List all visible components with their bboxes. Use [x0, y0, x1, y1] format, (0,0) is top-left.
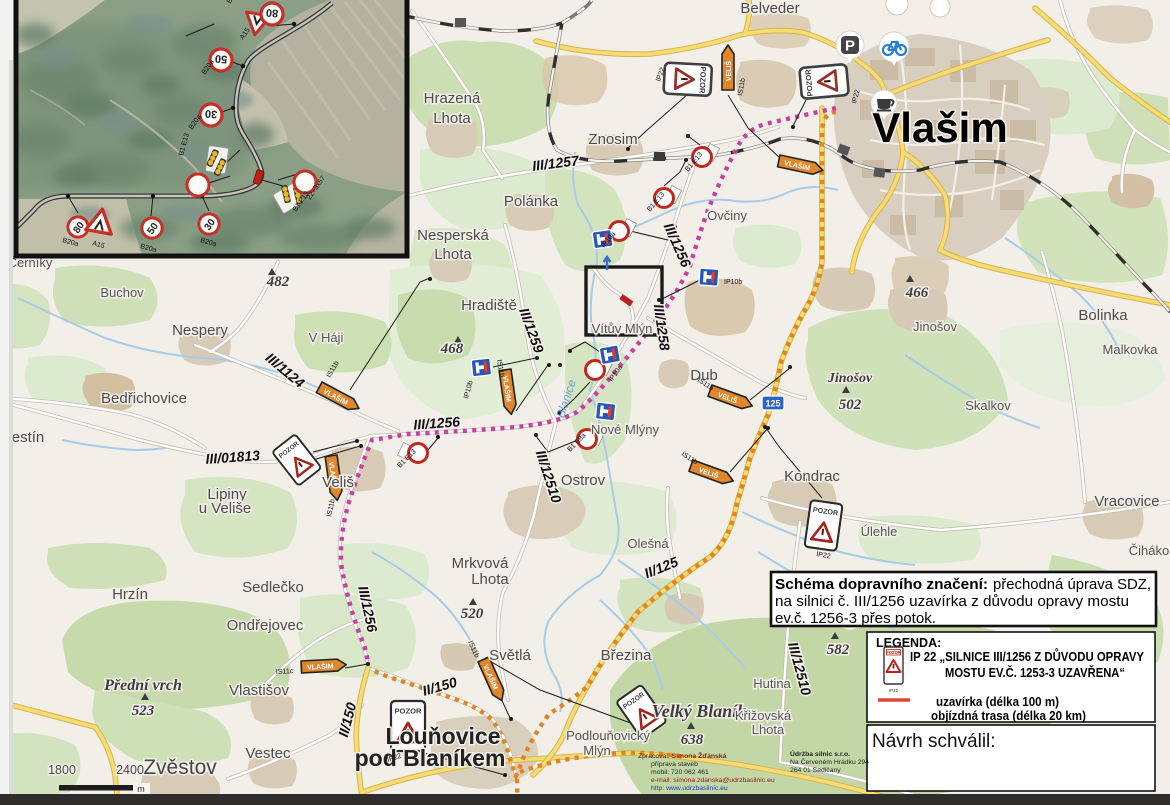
svg-text:Zpracoval: Simona Žďánská: Zpracoval: Simona Žďánská: [638, 751, 727, 760]
svg-text:Nesperská: Nesperská: [417, 227, 489, 244]
svg-text:80: 80: [266, 6, 279, 19]
svg-text:přechodná úprava SDZ,: přechodná úprava SDZ,: [993, 576, 1151, 593]
svg-text:Světlá: Světlá: [489, 647, 531, 664]
svg-text:Vlašim: Vlašim: [872, 104, 1007, 151]
svg-text:Hutina: Hutina: [753, 676, 791, 691]
svg-text:1800: 1800: [48, 763, 76, 777]
svg-text:Hrazená: Hrazená: [424, 90, 481, 107]
svg-text:ev.č. 1256-3 přes potok.: ev.č. 1256-3 přes potok.: [775, 610, 936, 627]
svg-text:Údržba silnic s.r.o.: Údržba silnic s.r.o.: [790, 749, 850, 758]
svg-text:482: 482: [266, 274, 290, 290]
svg-text:IS11c: IS11c: [276, 668, 294, 676]
svg-text:Ostrov: Ostrov: [561, 472, 606, 489]
svg-text:Velký Blaník: Velký Blaník: [652, 701, 747, 721]
svg-text:POZOR: POZOR: [886, 650, 901, 655]
svg-text:264 01 Sedlčany: 264 01 Sedlčany: [790, 767, 841, 774]
svg-text:466: 466: [905, 285, 929, 301]
svg-text:P: P: [845, 38, 855, 55]
svg-text:Polánka: Polánka: [504, 193, 559, 210]
svg-text:Vlastišov: Vlastišov: [229, 682, 290, 699]
svg-text:50: 50: [215, 52, 228, 65]
svg-text:Lhota: Lhota: [752, 722, 785, 737]
svg-text:Bedřichovice: Bedřichovice: [101, 390, 187, 407]
svg-text:IP10b: IP10b: [724, 279, 742, 286]
svg-text:Na Červeném Hrádku 294: Na Červeném Hrádku 294: [790, 757, 869, 766]
svg-text:http: www.udrzbasilnic.eu: http: www.udrzbasilnic.eu: [651, 785, 728, 792]
svg-text:Podlouňovický: Podlouňovický: [566, 728, 650, 743]
svg-text:523: 523: [132, 703, 155, 719]
svg-text:Vítův Mlýn: Vítův Mlýn: [592, 321, 653, 336]
svg-text:Hradiště: Hradiště: [461, 297, 517, 314]
svg-text:mobil: 720 062 461: mobil: 720 062 461: [651, 769, 709, 776]
svg-text:pod Blaníkem: pod Blaníkem: [355, 745, 506, 771]
svg-text:V Háji: V Háji: [309, 330, 344, 345]
svg-text:Schéma dopravního značení:: Schéma dopravního značení:: [775, 576, 988, 593]
svg-text:468: 468: [440, 341, 464, 357]
svg-text:m: m: [137, 784, 145, 794]
svg-text:30: 30: [205, 107, 218, 120]
svg-text:Březina: Březina: [601, 647, 653, 664]
svg-text:Lhota: Lhota: [433, 110, 471, 127]
svg-text:Nové Mlýny: Nové Mlýny: [591, 422, 659, 437]
svg-text:MOSTU EV.Č. 1253-3 UZAVŘENA“: MOSTU EV.Č. 1253-3 UZAVŘENA“: [945, 665, 1125, 680]
svg-text:Vestec: Vestec: [245, 745, 291, 762]
svg-text:Buchov: Buchov: [100, 285, 144, 300]
svg-text:u Veliše: u Veliše: [199, 500, 252, 517]
svg-text:Ovčiny: Ovčiny: [707, 208, 747, 223]
svg-text:III/1256: III/1256: [413, 413, 461, 432]
svg-text:Zvěstov: Zvěstov: [143, 756, 217, 779]
svg-text:Bolinka: Bolinka: [1078, 307, 1128, 324]
svg-text:Lhota: Lhota: [471, 571, 509, 588]
svg-text:Návrh schválil:: Návrh schválil:: [872, 731, 996, 752]
svg-text:objízdná trasa (délka 20 km): objízdná trasa (délka 20 km): [931, 709, 1086, 723]
svg-text:Veliš: Veliš: [322, 474, 354, 491]
svg-text:Nespery: Nespery: [172, 322, 228, 339]
svg-text:na silnici č. III/1256 uzavírk: na silnici č. III/1256 uzavírka z důvodu…: [775, 593, 1129, 610]
svg-text:Sedlečko: Sedlečko: [242, 579, 304, 596]
svg-text:IP 22 „SILNICE III/1256 Z DŮVO: IP 22 „SILNICE III/1256 Z DŮVODU OPRAVY: [910, 648, 1145, 664]
svg-text:520: 520: [461, 606, 484, 622]
svg-text:IP22: IP22: [889, 688, 899, 693]
svg-text:Lhota: Lhota: [434, 246, 472, 263]
svg-text:Olešná: Olešná: [627, 536, 669, 551]
svg-text:2400: 2400: [116, 763, 144, 777]
svg-text:Belveder: Belveder: [740, 0, 799, 17]
svg-text:502: 502: [839, 397, 862, 413]
svg-text:582: 582: [827, 642, 850, 658]
svg-text:Malkovka: Malkovka: [1103, 342, 1159, 357]
svg-text:Mlýn: Mlýn: [583, 743, 610, 758]
svg-text:Hrzín: Hrzín: [112, 586, 148, 603]
svg-text:Křižovská: Křižovská: [735, 708, 792, 723]
svg-text:Znosim: Znosim: [588, 131, 637, 148]
svg-text:Přední vrch: Přední vrch: [103, 677, 182, 694]
svg-text:Jinošov: Jinošov: [913, 319, 958, 334]
svg-text:Mrkvová: Mrkvová: [452, 555, 509, 572]
svg-text:Skalkov: Skalkov: [965, 398, 1011, 413]
svg-text:Úlehle: Úlehle: [861, 524, 898, 539]
svg-text:Jinošov: Jinošov: [827, 371, 873, 386]
svg-text:Kondrac: Kondrac: [784, 468, 840, 485]
svg-text:Čiháko: Čiháko: [1129, 543, 1169, 558]
svg-text:e-mail: simona.zdanska@udrzbas: e-mail: simona.zdanska@udrzbasilnic.eu: [651, 777, 775, 784]
svg-text:příprava staveb: příprava staveb: [651, 761, 698, 768]
svg-text:638: 638: [681, 732, 704, 748]
svg-text:Ondřejovec: Ondřejovec: [227, 617, 304, 634]
svg-text:Vracovice: Vracovice: [1094, 493, 1159, 510]
svg-text:estín: estín: [12, 429, 45, 446]
svg-text:uzavírka (délka 100 m): uzavírka (délka 100 m): [936, 695, 1059, 709]
svg-text:125: 125: [765, 399, 780, 409]
